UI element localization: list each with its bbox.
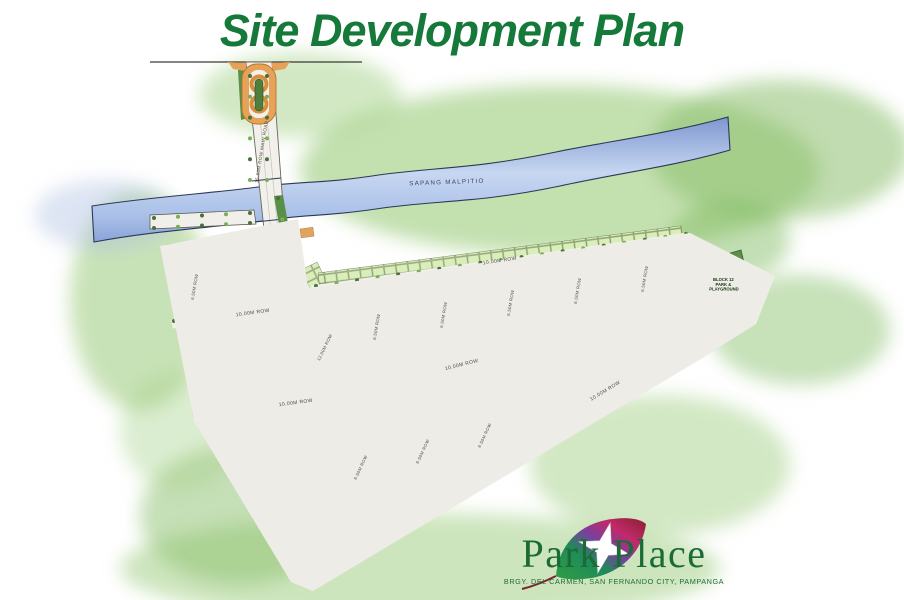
logo-name: Park Place [522,531,707,576]
site-development-plan-page: SAPANG MALPITIO 15.00M ROW MAIN ROAD 12.… [0,0,904,600]
page-title: Site Development Plan [220,5,684,56]
logo-address: BRGY. DEL CARMEN, SAN FERNANDO CITY, PAM… [504,577,724,586]
site-plan-canvas: SAPANG MALPITIO 15.00M ROW MAIN ROAD 12.… [0,0,904,600]
junction-accent [300,227,314,238]
gate-median-island [255,79,263,111]
